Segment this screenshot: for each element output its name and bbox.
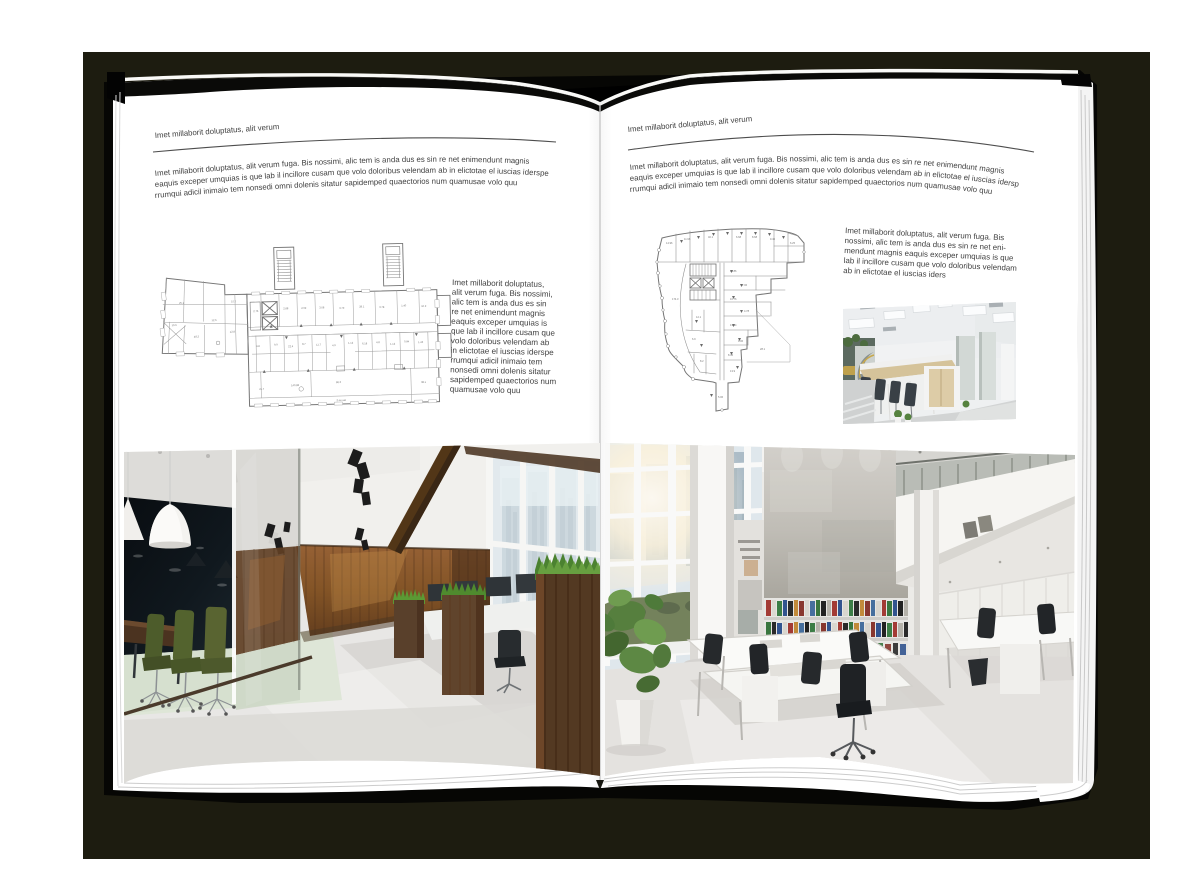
svg-text:40.1: 40.1 (708, 235, 714, 239)
svg-text:4.8: 4.8 (376, 340, 380, 344)
svg-text:4.8: 4.8 (256, 344, 260, 348)
svg-text:4.9: 4.9 (332, 343, 336, 347)
svg-text:86.3: 86.3 (336, 380, 342, 384)
svg-text:quamusae volo quu: quamusae volo quu (450, 385, 521, 395)
svg-text:140.88: 140.88 (291, 383, 300, 387)
svg-text:37.7: 37.7 (231, 300, 237, 304)
svg-text:16.76: 16.76 (730, 297, 737, 301)
svg-text:8.68: 8.68 (752, 235, 758, 239)
svg-text:2.88: 2.88 (283, 306, 289, 310)
svg-text:22.4: 22.4 (288, 344, 294, 348)
svg-text:8.7: 8.7 (302, 342, 306, 346)
svg-text:9.46: 9.46 (770, 237, 776, 241)
svg-text:21.7: 21.7 (259, 387, 265, 391)
svg-text:6.9: 6.9 (692, 337, 696, 341)
svg-text:11.7: 11.7 (316, 342, 322, 346)
svg-text:3.79: 3.79 (339, 306, 345, 310)
svg-text:0.84: 0.84 (404, 339, 410, 343)
svg-text:38.1: 38.1 (421, 380, 427, 384)
svg-text:25.1: 25.1 (179, 301, 185, 305)
svg-text:6.18: 6.18 (362, 341, 368, 345)
svg-text:8.36: 8.36 (728, 353, 734, 357)
svg-text:12.1: 12.1 (696, 315, 702, 319)
svg-text:3.08: 3.08 (319, 305, 325, 309)
svg-text:1.12: 1.12 (390, 342, 396, 346)
svg-text:28.1: 28.1 (760, 347, 766, 351)
svg-text:174.3: 174.3 (672, 297, 679, 301)
svg-text:10.6: 10.6 (172, 323, 178, 327)
svg-text:6.25: 6.25 (790, 241, 796, 245)
svg-text:1.43: 1.43 (418, 340, 424, 344)
svg-text:5.06: 5.06 (718, 395, 724, 399)
svg-text:48.2: 48.2 (194, 334, 200, 338)
svg-text:12.8: 12.8 (230, 330, 236, 334)
svg-text:9.06: 9.06 (738, 339, 744, 343)
svg-text:1.12: 1.12 (348, 341, 354, 345)
svg-text:13.9: 13.9 (730, 369, 736, 373)
svg-text:3.78: 3.78 (379, 305, 385, 309)
svg-text:6.68: 6.68 (736, 235, 742, 239)
svg-text:28.1: 28.1 (359, 304, 365, 308)
svg-text:13.86: 13.86 (730, 269, 737, 273)
svg-text:1.40: 1.40 (401, 303, 407, 307)
svg-text:12.6: 12.6 (211, 318, 217, 322)
svg-text:13.64: 13.64 (730, 323, 737, 327)
svg-text:10.2: 10.2 (421, 304, 427, 308)
svg-text:11.96: 11.96 (684, 237, 691, 241)
svg-text:8.2: 8.2 (700, 359, 704, 363)
svg-text:2-oe aat: 2-oe aat (336, 398, 346, 402)
svg-text:14.96: 14.96 (666, 241, 673, 245)
svg-text:7.06: 7.06 (742, 283, 748, 287)
svg-text:4.78: 4.78 (744, 309, 750, 313)
svg-text:9.9: 9.9 (274, 343, 278, 347)
svg-text:2.76: 2.76 (253, 309, 259, 313)
svg-text:2.92: 2.92 (301, 306, 307, 310)
